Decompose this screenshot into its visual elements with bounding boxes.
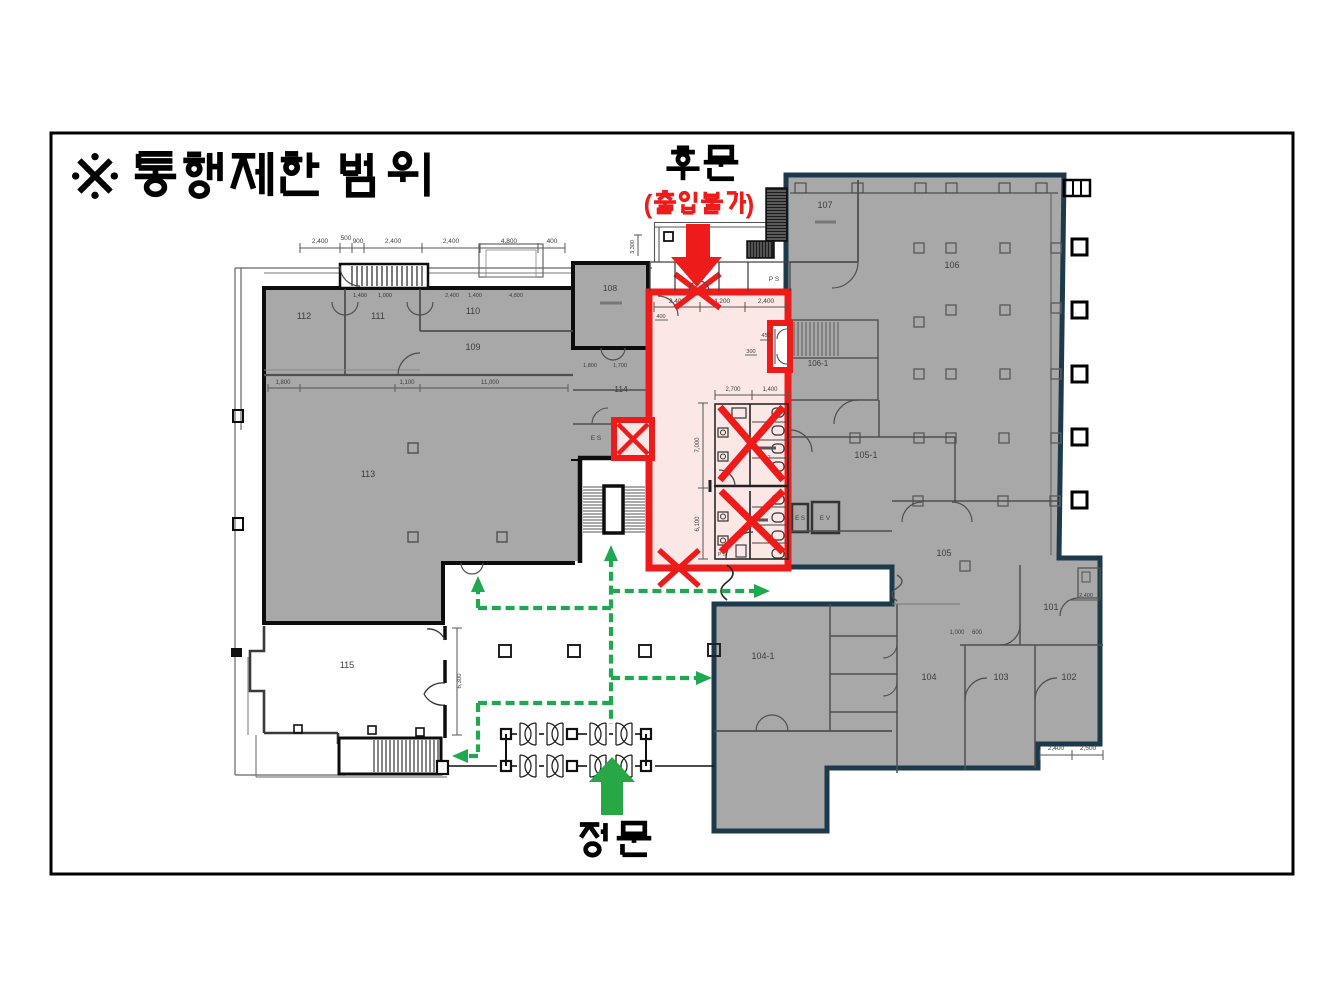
svg-text:2,400: 2,400 (385, 238, 402, 245)
svg-text:2,400: 2,400 (1079, 593, 1093, 599)
svg-text:2,400: 2,400 (758, 298, 775, 305)
svg-text:108: 108 (603, 283, 617, 293)
svg-text:1,800: 1,800 (275, 380, 291, 386)
svg-text:): ) (746, 189, 755, 219)
svg-text:400: 400 (656, 314, 665, 320)
svg-text:E S: E S (795, 516, 805, 522)
svg-text:2,400: 2,400 (443, 238, 460, 245)
svg-text:1,000: 1,000 (949, 630, 965, 636)
svg-text:111: 111 (371, 311, 385, 321)
svg-text:P S: P S (769, 276, 780, 283)
svg-text:106: 106 (944, 260, 959, 270)
svg-text:450: 450 (761, 333, 770, 339)
svg-text:2,400: 2,400 (312, 238, 329, 245)
svg-text:110: 110 (466, 306, 480, 316)
svg-text:6,100: 6,100 (695, 516, 701, 532)
svg-text:107: 107 (817, 200, 832, 210)
svg-text:3,300: 3,300 (630, 240, 636, 254)
svg-text:2,400: 2,400 (445, 293, 459, 299)
svg-text:102: 102 (1061, 672, 1076, 682)
svg-text:900: 900 (353, 238, 364, 245)
svg-text:400: 400 (547, 238, 558, 245)
svg-text:114: 114 (614, 384, 628, 394)
svg-text:1,400: 1,400 (353, 293, 367, 299)
svg-text:11,000: 11,000 (481, 380, 500, 386)
svg-text:7,000: 7,000 (695, 437, 701, 453)
svg-text:104-1: 104-1 (751, 651, 774, 661)
svg-text:2,500: 2,500 (1080, 745, 1097, 752)
svg-text:E S: E S (591, 435, 602, 442)
svg-text:1,700: 1,700 (613, 363, 627, 369)
svg-text:1,400: 1,400 (468, 293, 482, 299)
svg-text:105-1: 105-1 (854, 450, 877, 460)
svg-text:1,800: 1,800 (583, 363, 597, 369)
svg-text:106-1: 106-1 (808, 359, 829, 368)
svg-text:103: 103 (993, 672, 1008, 682)
svg-text:6,300: 6,300 (457, 673, 463, 689)
svg-text:1,000: 1,000 (378, 293, 392, 299)
svg-text:600: 600 (972, 630, 983, 636)
svg-text:4,800: 4,800 (509, 293, 523, 299)
svg-text:112: 112 (297, 311, 311, 321)
svg-text:E V: E V (820, 515, 831, 522)
svg-text:101: 101 (1043, 602, 1058, 612)
svg-text:105: 105 (936, 548, 951, 558)
svg-text:109: 109 (465, 342, 480, 352)
svg-text:1,100: 1,100 (399, 380, 415, 386)
svg-text:2,700: 2,700 (725, 387, 741, 393)
svg-text:104: 104 (921, 672, 936, 682)
svg-text:1,400: 1,400 (762, 387, 778, 393)
svg-text:(: ( (644, 189, 653, 219)
svg-text:113: 113 (361, 469, 375, 479)
svg-text:115: 115 (340, 660, 354, 670)
svg-text:500: 500 (341, 235, 352, 242)
svg-text:300: 300 (746, 349, 755, 355)
svg-text:2,400: 2,400 (1048, 745, 1065, 752)
